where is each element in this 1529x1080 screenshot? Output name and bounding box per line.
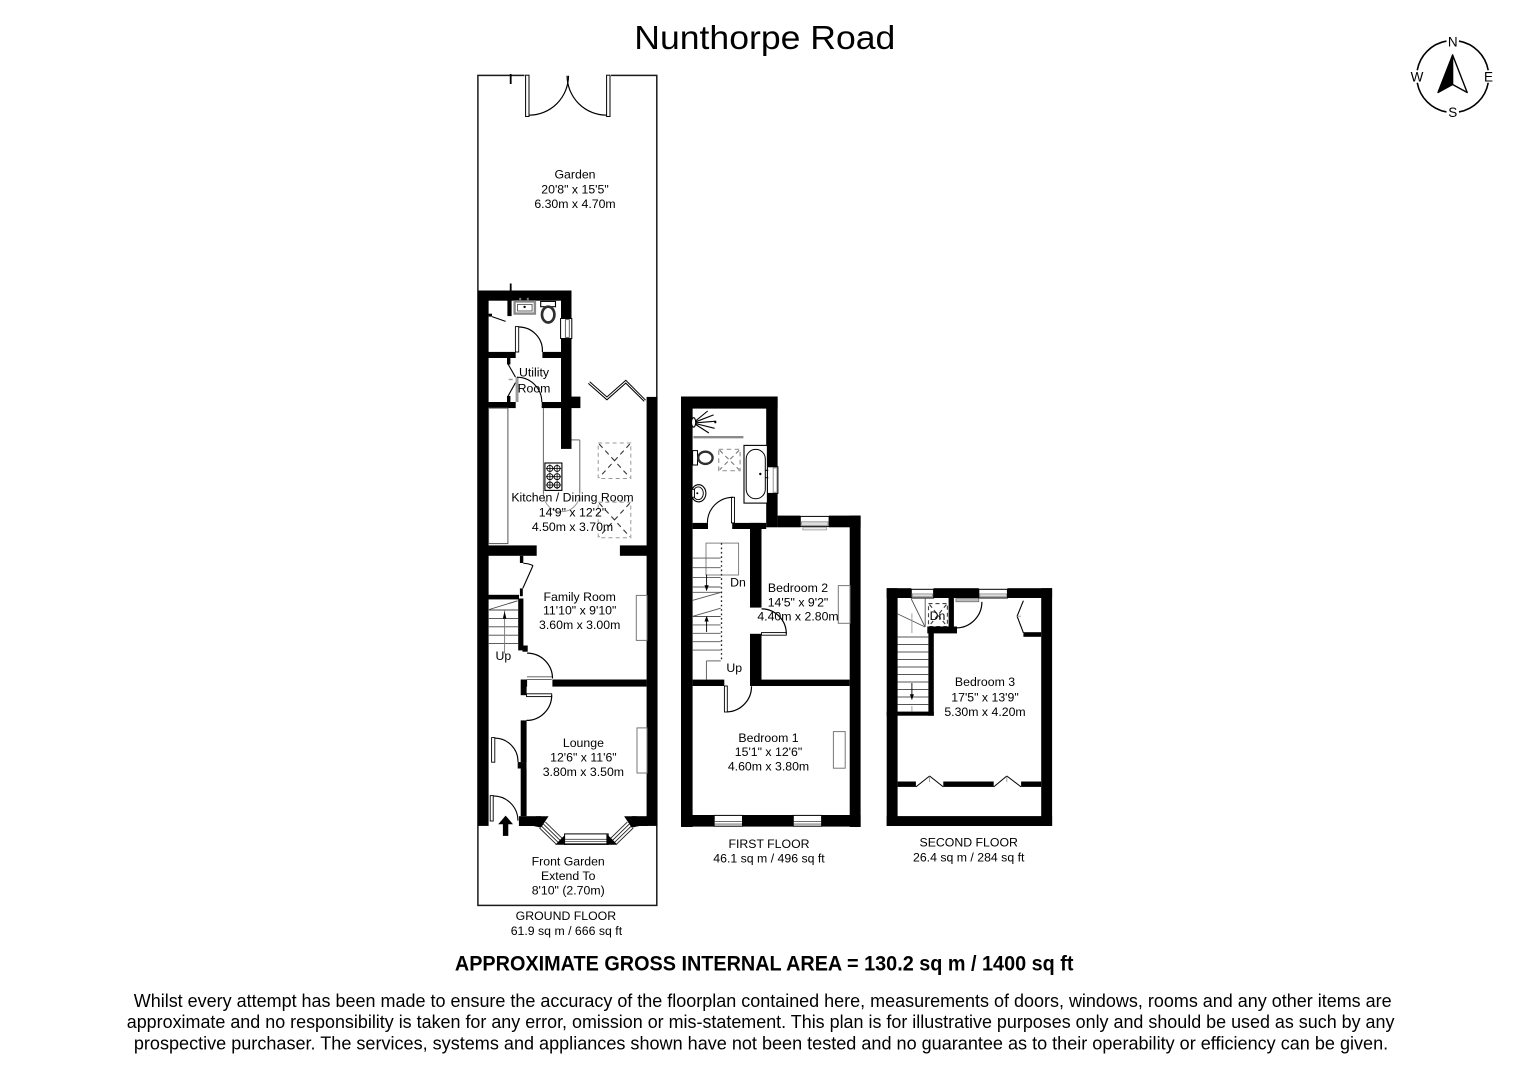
svg-text:Front Garden: Front Garden (532, 854, 605, 868)
svg-text:Up: Up (726, 661, 742, 675)
svg-text:Bedroom 2: Bedroom 2 (768, 581, 828, 595)
svg-text:Up: Up (496, 649, 512, 663)
svg-text:6.30m x 4.70m: 6.30m x 4.70m (534, 197, 615, 211)
svg-text:prospective purchaser. The ser: prospective purchaser. The services, sys… (134, 1033, 1388, 1054)
svg-text:Lounge: Lounge (563, 736, 604, 750)
svg-text:Extend To: Extend To (541, 869, 596, 883)
svg-text:8'10" (2.70m): 8'10" (2.70m) (532, 884, 605, 898)
svg-text:4.40m x 2.80m: 4.40m x 2.80m (757, 609, 838, 623)
svg-text:Kitchen / Dining Room: Kitchen / Dining Room (511, 491, 633, 505)
svg-text:N: N (1448, 35, 1458, 50)
svg-text:Garden: Garden (554, 168, 595, 182)
svg-text:Bedroom 3: Bedroom 3 (955, 675, 1015, 689)
svg-text:Family Room: Family Room (543, 590, 615, 604)
svg-text:15'1" x 12'6": 15'1" x 12'6" (735, 745, 802, 759)
svg-text:3.60m x 3.00m: 3.60m x 3.00m (539, 618, 620, 632)
svg-text:17'5" x 13'9": 17'5" x 13'9" (951, 690, 1018, 704)
svg-text:14'5" x 9'2": 14'5" x 9'2" (768, 595, 829, 609)
svg-text:Dn: Dn (930, 609, 946, 623)
svg-text:20'8" x 15'5": 20'8" x 15'5" (541, 182, 608, 196)
svg-text:Room: Room (518, 381, 551, 395)
svg-text:4.50m x 3.70m: 4.50m x 3.70m (532, 520, 613, 534)
svg-text:FIRST FLOOR: FIRST FLOOR (728, 837, 809, 851)
svg-text:S: S (1448, 105, 1457, 120)
svg-text:Utility: Utility (519, 366, 550, 380)
svg-text:14'9" x 12'2": 14'9" x 12'2" (539, 505, 606, 519)
svg-text:11'10" x 9'10": 11'10" x 9'10" (543, 604, 616, 618)
svg-text:46.1 sq m / 496 sq ft: 46.1 sq m / 496 sq ft (713, 852, 825, 866)
svg-text:Bedroom 1: Bedroom 1 (738, 731, 798, 745)
svg-text:5.30m x 4.20m: 5.30m x 4.20m (944, 705, 1025, 719)
svg-text:26.4 sq m / 284 sq ft: 26.4 sq m / 284 sq ft (913, 850, 1025, 864)
svg-text:Whilst every attempt has been: Whilst every attempt has been made to en… (134, 990, 1392, 1011)
svg-text:SECOND FLOOR: SECOND FLOOR (920, 836, 1019, 850)
svg-text:12'6" x 11'6": 12'6" x 11'6" (550, 751, 617, 765)
svg-text:61.9 sq m / 666 sq ft: 61.9 sq m / 666 sq ft (511, 924, 623, 938)
svg-text:Nunthorpe Road: Nunthorpe Road (634, 20, 895, 57)
svg-text:3.80m x 3.50m: 3.80m x 3.50m (543, 765, 624, 779)
svg-text:APPROXIMATE GROSS INTERNAL ARE: APPROXIMATE GROSS INTERNAL AREA = 130.2 … (455, 952, 1074, 975)
svg-text:4.60m x 3.80m: 4.60m x 3.80m (728, 759, 809, 773)
svg-text:GROUND FLOOR: GROUND FLOOR (516, 909, 617, 923)
svg-text:approximate and no responsibil: approximate and no responsibility is tak… (127, 1011, 1395, 1032)
svg-text:Dn: Dn (730, 575, 746, 589)
svg-text:E: E (1484, 69, 1493, 84)
svg-text:W: W (1411, 69, 1424, 84)
